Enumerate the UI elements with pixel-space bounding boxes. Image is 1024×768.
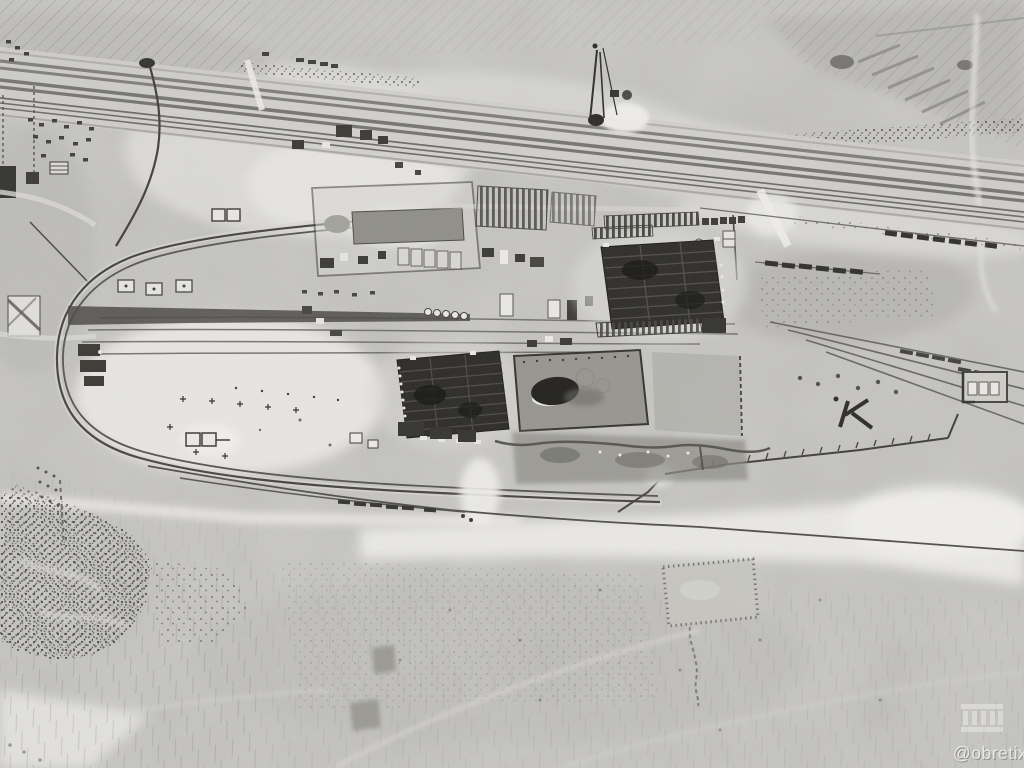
watermark-handle: @obretix [953, 743, 1024, 763]
satellite-screenshot: @obretix @obretix [0, 0, 1024, 768]
film-grain-overlay [0, 0, 1024, 768]
satellite-image: @obretix @obretix [0, 0, 1024, 768]
